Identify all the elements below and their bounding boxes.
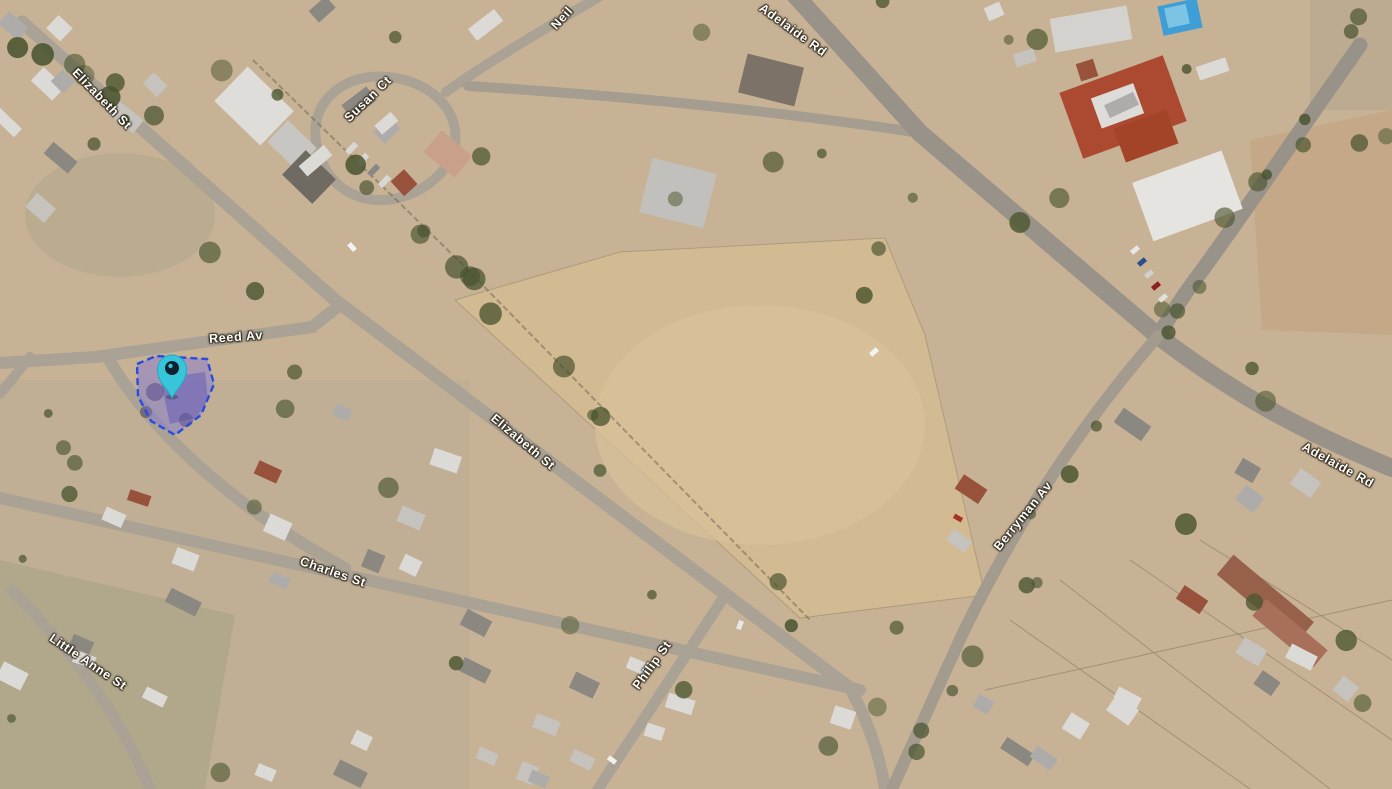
aerial-imagery xyxy=(0,0,1392,789)
satellite-map[interactable]: Elizabeth St Susan Ct Neil Adelaide Rd R… xyxy=(0,0,1392,789)
